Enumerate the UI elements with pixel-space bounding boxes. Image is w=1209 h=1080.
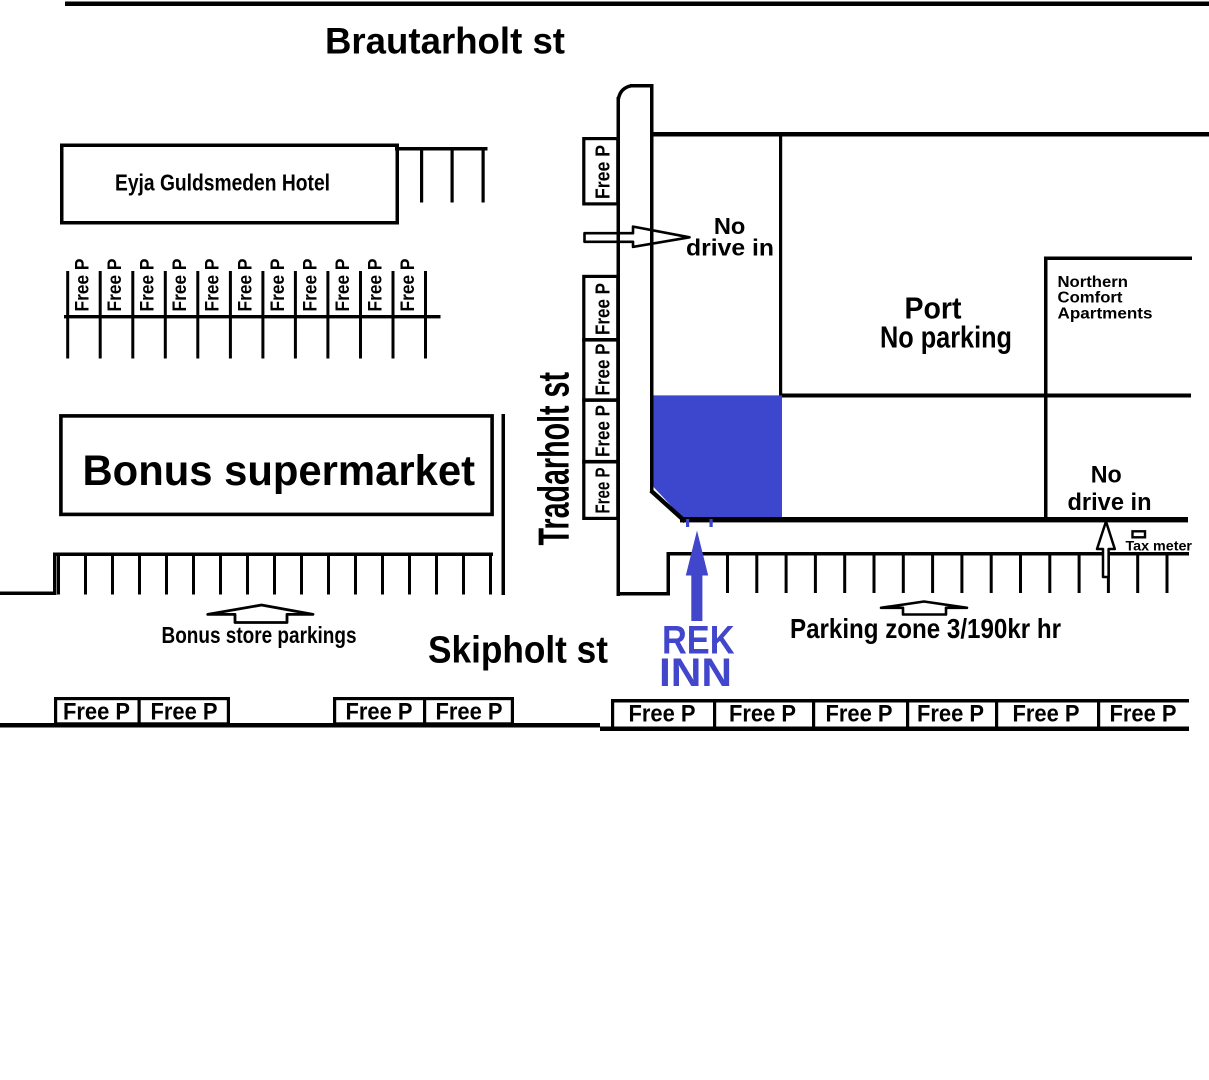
svg-text:Free P: Free P: [398, 258, 419, 311]
svg-text:Free P: Free P: [203, 258, 224, 311]
svg-text:Free P: Free P: [138, 258, 159, 311]
svg-text:Apartments: Apartments: [1058, 305, 1153, 322]
svg-text:Free P: Free P: [593, 283, 615, 335]
svg-text:Free P: Free P: [268, 258, 289, 311]
svg-text:Free P: Free P: [1013, 700, 1080, 727]
svg-text:Free P: Free P: [593, 344, 615, 396]
svg-text:Free P: Free P: [917, 700, 984, 727]
svg-text:Free P: Free P: [63, 699, 130, 726]
svg-text:INN: INN: [659, 651, 732, 695]
svg-text:Free P: Free P: [151, 699, 218, 726]
svg-text:Free P: Free P: [365, 258, 386, 311]
svg-text:Free P: Free P: [346, 699, 413, 726]
svg-text:Free P: Free P: [1110, 700, 1177, 727]
svg-text:Free P: Free P: [436, 699, 503, 726]
svg-text:Bonus store parkings: Bonus store parkings: [162, 622, 357, 648]
svg-text:drive in: drive in: [686, 234, 774, 260]
svg-text:Free P: Free P: [593, 145, 615, 199]
svg-text:No: No: [1091, 462, 1122, 489]
svg-text:Tradarholt st: Tradarholt st: [530, 372, 578, 546]
svg-text:Tax meter: Tax meter: [1126, 538, 1193, 554]
svg-text:Comfort: Comfort: [1058, 290, 1123, 307]
svg-text:Free P: Free P: [593, 468, 615, 514]
svg-text:Free P: Free P: [729, 700, 796, 727]
svg-text:Brautarholt st: Brautarholt st: [325, 20, 565, 62]
svg-text:Free P: Free P: [105, 258, 126, 311]
svg-text:Free P: Free P: [826, 700, 893, 727]
svg-text:Skipholt st: Skipholt st: [428, 629, 608, 671]
svg-text:No parking: No parking: [880, 320, 1012, 354]
svg-text:Bonus supermarket: Bonus supermarket: [83, 448, 476, 495]
svg-text:Eyja Guldsmeden Hotel: Eyja Guldsmeden Hotel: [115, 170, 330, 196]
svg-text:Free P: Free P: [300, 258, 321, 311]
svg-text:Free P: Free P: [593, 405, 615, 457]
svg-text:Parking zone 3/190kr hr: Parking zone 3/190kr hr: [790, 613, 1061, 644]
svg-text:Free P: Free P: [170, 258, 191, 311]
svg-text:Free P: Free P: [73, 258, 94, 311]
svg-text:Free P: Free P: [629, 700, 696, 727]
svg-text:drive in: drive in: [1068, 489, 1152, 516]
svg-text:Free P: Free P: [235, 258, 256, 311]
svg-text:Northern: Northern: [1058, 274, 1129, 291]
svg-text:Free P: Free P: [333, 258, 354, 311]
